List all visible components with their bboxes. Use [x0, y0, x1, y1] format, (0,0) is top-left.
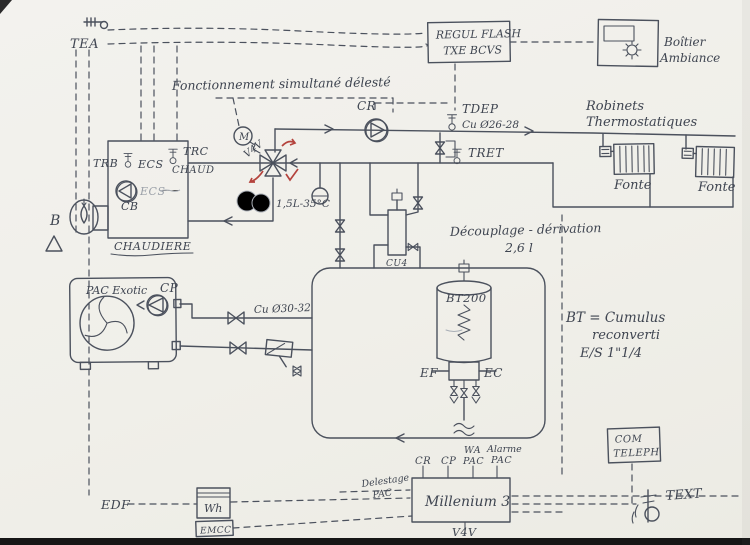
tea-sensor-icon — [84, 18, 108, 29]
wh-meter-box: Wh — [197, 488, 230, 518]
radiator-2-label: Fonte — [697, 180, 736, 195]
millenium-in-cr: CR — [415, 456, 431, 467]
scan-right-shadow — [742, 0, 750, 545]
drain-valve-icon — [293, 366, 301, 376]
cb-pump-icon — [116, 181, 137, 202]
v4v-setpoint-label: 1,5L-35°C — [276, 198, 330, 210]
text-sensor-icon — [632, 490, 659, 523]
wh-label: Wh — [204, 502, 222, 515]
millenium-in-wa1: WA — [464, 445, 481, 456]
tea-label: TEA — [70, 37, 99, 52]
robinets-label-1: Robinets — [585, 99, 644, 114]
cu3032-label: Cu Ø30-32 — [254, 302, 312, 316]
trc-label: TRC — [183, 145, 209, 158]
ef-label: EF — [419, 366, 438, 380]
emcc-label: EMCC — [199, 525, 232, 536]
scanned-schematic-page: TEA REGUL FLASH TXE BCVS Boîtier Ambianc… — [0, 0, 750, 545]
trc-sensor-icon — [169, 149, 178, 163]
ec-label: EC — [483, 366, 503, 380]
heating-schematic-drawing: TEA REGUL FLASH TXE BCVS Boîtier Ambianc… — [0, 0, 750, 545]
millenium-name: Millenium 3 — [424, 494, 510, 510]
millenium-box: Millenium 3 CR CP WA PAC Alarme PAC V4V — [412, 444, 522, 539]
millenium-in-al2: PAC — [490, 455, 512, 466]
text-sensor-label: TEXT — [665, 486, 703, 504]
bt-note-1: BT = Cumulus — [565, 310, 665, 326]
burner-label: B — [49, 213, 60, 229]
radiator-1 — [600, 144, 655, 175]
edf-label: EDF — [100, 497, 131, 512]
bt200-tank-icon — [432, 260, 496, 436]
thermostatic-valve-icon — [682, 148, 693, 158]
tdep-label: TDEP — [462, 102, 499, 116]
emcc-box: EMCC — [196, 520, 234, 536]
tdep-pipe-label: Cu Ø26-28 — [462, 119, 519, 131]
thermostatic-valve-icon — [600, 146, 611, 156]
radiator-1-label: Fonte — [613, 178, 652, 193]
pencil-scribble — [252, 194, 270, 212]
millenium-in-wa2: PAC — [462, 456, 484, 467]
boitier-line1: Boîtier — [663, 35, 707, 49]
boiler-box: TRB ECS TRC CHAUD ECS CB CHAUDIERE — [93, 141, 215, 256]
dial-icon — [627, 45, 637, 55]
cp-pump-icon — [137, 295, 168, 316]
filter-icon — [264, 340, 292, 368]
chaud-label: CHAUD — [172, 165, 215, 176]
bt-circuit-loop — [312, 268, 545, 442]
tret-label: TRET — [468, 146, 504, 160]
room-unit-box — [598, 19, 659, 66]
regul-line1: REGUL FLASH — [435, 27, 522, 42]
millenium-in-al1: Alarme — [486, 444, 522, 455]
differential-valve-icon — [436, 133, 456, 163]
trb-label: TRB — [93, 157, 118, 170]
com-teleph-box: COM TELEPH — [607, 427, 660, 463]
boiler-name: CHAUDIERE — [114, 240, 191, 253]
pac-name-label: PAC Exotic — [85, 284, 147, 297]
ecs-top-label: ECS — [137, 158, 163, 171]
millenium-in-cp: CP — [441, 456, 456, 467]
decouplage-note-1: Découplage - dérivation — [449, 220, 602, 239]
radiator-2 — [682, 146, 735, 177]
regul-line2: TXE BCVS — [443, 43, 503, 57]
bt200-label: BT200 — [445, 291, 487, 305]
millenium-out-v4v: V4V — [452, 526, 477, 539]
scan-corner-mark — [0, 0, 12, 14]
tdep-sensor-icon — [448, 115, 457, 130]
bt-note-2: reconverti — [592, 328, 660, 343]
cb-label: CB — [121, 200, 139, 213]
v4v-motor-label: M — [238, 132, 250, 143]
decouplage-note-2: 2,6 l — [504, 240, 533, 255]
trb-sensor-icon — [124, 154, 132, 168]
bt-note-3: E/S 1"1/4 — [579, 346, 642, 361]
com-line1: COM — [615, 434, 643, 446]
ecs-pump-label: ECS — [139, 185, 165, 198]
robinets-label-2: Thermostatiques — [586, 115, 698, 130]
boitier-line2: Ambiance — [659, 51, 720, 65]
regul-flash-box: REGUL FLASH TXE BCVS — [428, 21, 522, 63]
scan-bottom-edge — [0, 538, 750, 545]
low-loss-header-icon — [336, 189, 423, 261]
fonctionnement-note: Fonctionnement simultané délesté — [171, 74, 392, 93]
cp-pump-label: CP — [160, 281, 179, 295]
com-line2: TELEPH — [613, 447, 660, 460]
delta-mark — [46, 236, 62, 251]
cr-pump-label: CR — [357, 99, 376, 113]
tret-sensor-icon — [453, 149, 462, 163]
